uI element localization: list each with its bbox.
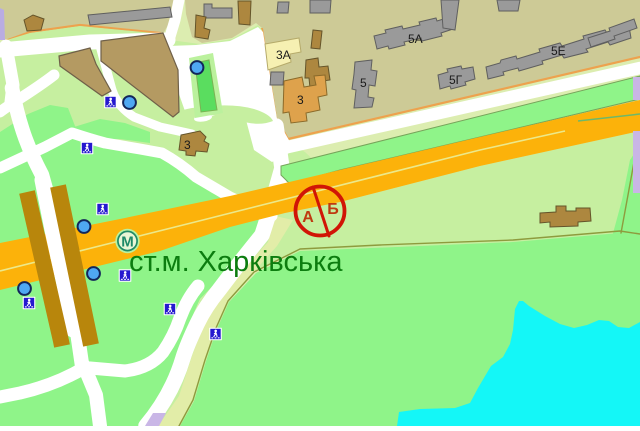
svg-text:5А: 5А [408, 32, 423, 46]
svg-text:3: 3 [297, 93, 304, 107]
svg-text:3А: 3А [276, 48, 291, 62]
svg-text:ст.м. Харківська: ст.м. Харківська [129, 246, 343, 278]
svg-text:5: 5 [360, 76, 367, 90]
svg-text:5Е: 5Е [551, 44, 566, 58]
svg-text:3: 3 [184, 138, 191, 152]
svg-text:5Г: 5Г [449, 73, 463, 87]
svg-text:Б: Б [327, 201, 339, 218]
svg-text:А: А [302, 209, 314, 226]
